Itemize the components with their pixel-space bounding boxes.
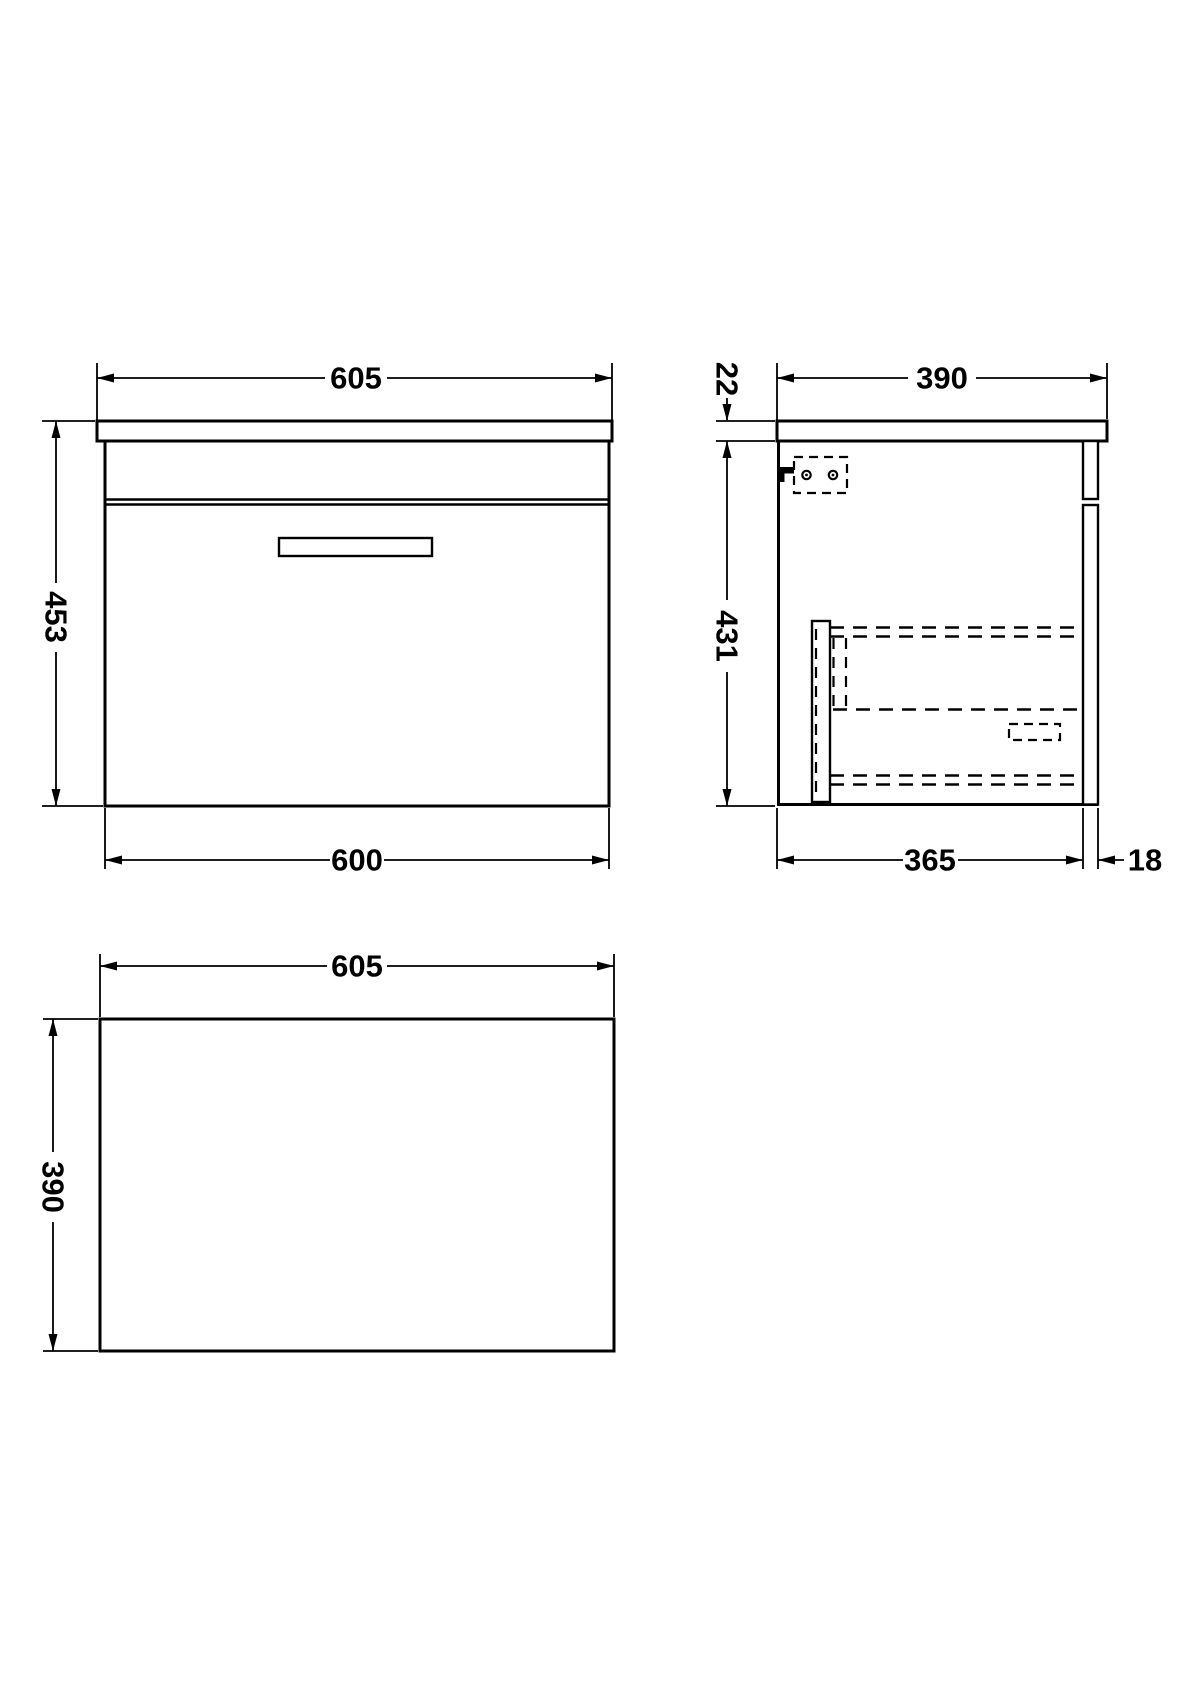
side-top-band (1083, 441, 1098, 499)
front-cabinet-body (105, 441, 609, 806)
front-height-dimension: 453 (39, 421, 104, 806)
technical-drawing: 605 453 6 (0, 0, 1200, 1698)
front-width-bottom-label: 600 (331, 843, 383, 878)
side-height-dimension: 431 (710, 441, 776, 806)
side-bottom-dimensions: 365 18 (777, 808, 1162, 878)
side-countertop-thickness-label: 22 (710, 362, 745, 396)
plan-depth-label: 390 (36, 1161, 71, 1213)
side-countertop-thickness-dimension: 22 (710, 362, 776, 441)
side-wall-bracket (777, 457, 847, 493)
drawer-mechanism-dashed (1009, 724, 1060, 740)
plan-depth-dimension: 390 (36, 1019, 99, 1351)
side-drawer-front-thickness-label: 18 (1128, 843, 1162, 878)
side-drawer-front (1083, 505, 1098, 805)
front-countertop (97, 421, 612, 441)
bracket-screw-right-center (832, 474, 835, 477)
side-depth-top-label: 390 (916, 361, 968, 396)
front-width-bottom-dimension: 600 (105, 808, 609, 878)
front-width-top-label: 605 (330, 361, 382, 396)
front-drawer-handle (279, 538, 432, 556)
wall-hook (777, 467, 795, 482)
side-countertop (777, 421, 1107, 441)
side-body-depth-label: 365 (904, 843, 956, 878)
side-height-label: 431 (710, 610, 745, 662)
side-view: 390 22 431 (710, 361, 1163, 878)
plan-width-dimension: 605 (100, 949, 614, 1018)
drawer-runner-bracket (812, 621, 830, 802)
plan-width-label: 605 (331, 949, 383, 984)
front-height-label: 453 (39, 591, 74, 643)
side-depth-dimension: 390 (777, 361, 1107, 421)
side-drawer-internals (812, 621, 1083, 802)
bracket-screw-left-center (805, 474, 808, 477)
front-view: 605 453 6 (39, 361, 613, 878)
front-width-dimension: 605 (97, 361, 612, 421)
plan-countertop (100, 1019, 614, 1351)
plan-view: 605 390 (36, 949, 615, 1352)
